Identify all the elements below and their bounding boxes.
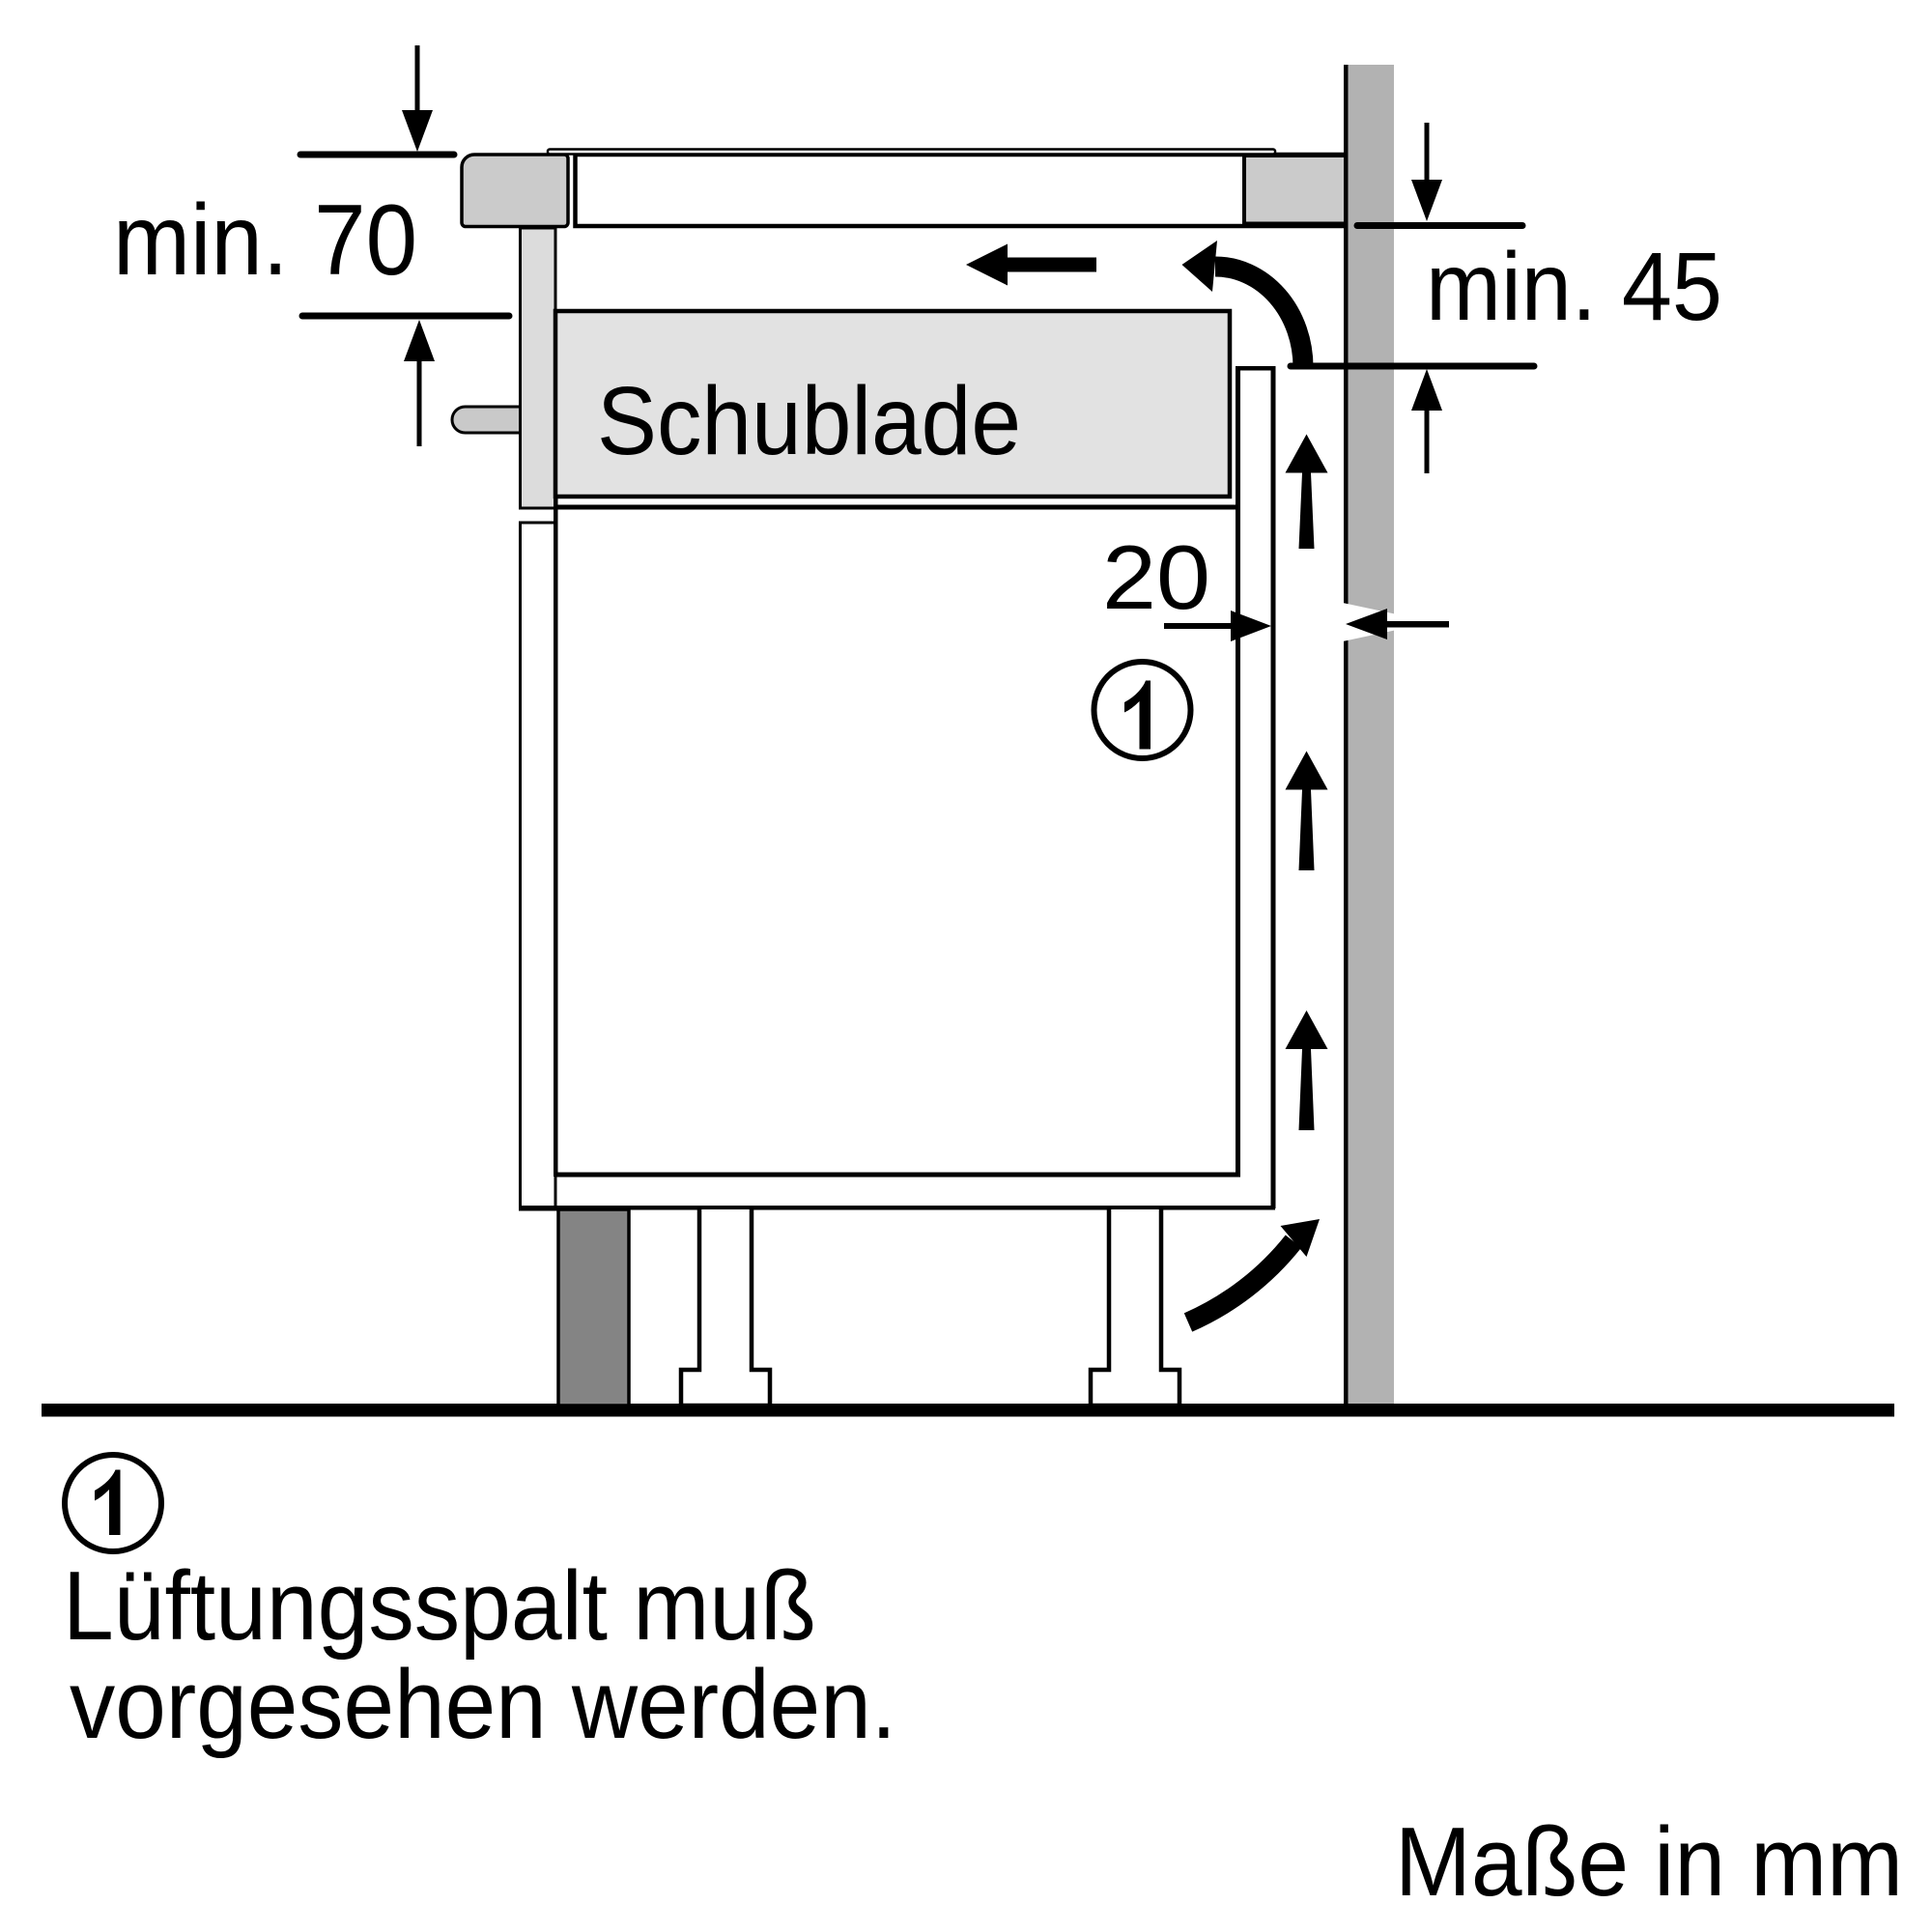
- svg-text:Maße in mm: Maße in mm: [1395, 1808, 1903, 1917]
- svg-text:Schublade: Schublade: [597, 367, 1021, 475]
- svg-text:vorgesehen werden.: vorgesehen werden.: [70, 1651, 896, 1759]
- svg-text:Lüftungsspalt muß: Lüftungsspalt muß: [63, 1552, 816, 1661]
- svg-text:min. 45: min. 45: [1426, 233, 1722, 341]
- svg-text:20: 20: [1102, 526, 1210, 628]
- svg-text:min. 70: min. 70: [113, 185, 417, 297]
